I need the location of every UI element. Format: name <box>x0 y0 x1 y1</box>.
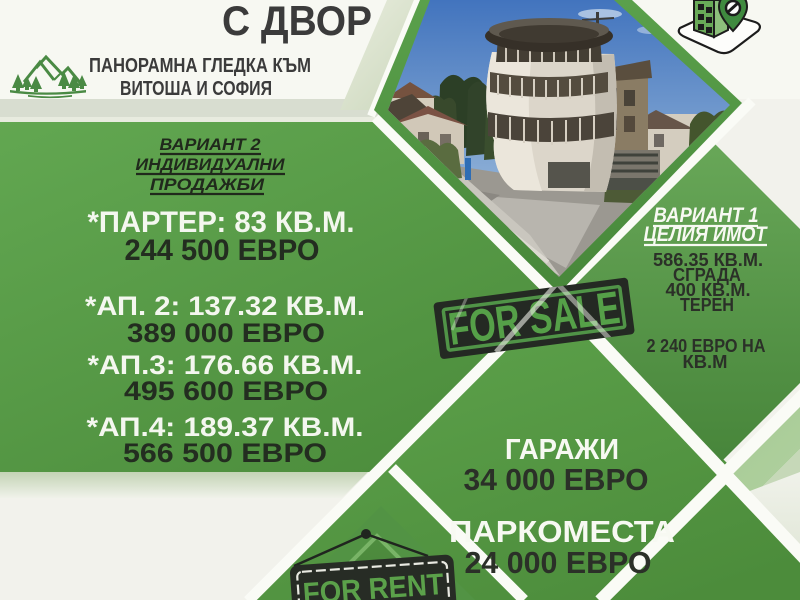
svg-text:ВИТОША И СОФИЯ: ВИТОША И СОФИЯ <box>120 78 272 100</box>
svg-text:ПРОДАЖБИ: ПРОДАЖБИ <box>150 175 265 194</box>
svg-text:ПАРКОМЕСТА: ПАРКОМЕСТА <box>449 514 675 549</box>
svg-text:ЦЕЛИЯ ИМОТ: ЦЕЛИЯ ИМОТ <box>644 223 769 246</box>
svg-text:24 000 ЕВРО: 24 000 ЕВРО <box>465 545 652 580</box>
svg-text:495 600 ЕВРО: 495 600 ЕВРО <box>124 376 328 406</box>
svg-text:566 500 ЕВРО: 566 500 ЕВРО <box>123 438 327 468</box>
svg-text:244 500 ЕВРО: 244 500 ЕВРО <box>125 234 320 267</box>
svg-text:С ДВОР: С ДВОР <box>222 0 372 44</box>
svg-text:КВ.М: КВ.М <box>683 352 728 372</box>
svg-text:389 000 ЕВРО: 389 000 ЕВРО <box>127 318 325 348</box>
svg-text:*АП. 2: 137.32 КВ.М.: *АП. 2: 137.32 КВ.М. <box>85 291 365 321</box>
svg-text:ИНДИВИДУАЛНИ: ИНДИВИДУАЛНИ <box>136 155 286 174</box>
svg-text:34 000 ЕВРО: 34 000 ЕВРО <box>464 462 649 497</box>
svg-text:ВАРИАНТ 2: ВАРИАНТ 2 <box>160 135 262 154</box>
svg-text:ТЕРЕН: ТЕРЕН <box>680 295 734 315</box>
svg-text:ПАНОРАМНА ГЛЕДКА КЪМ: ПАНОРАМНА ГЛЕДКА КЪМ <box>89 55 311 77</box>
